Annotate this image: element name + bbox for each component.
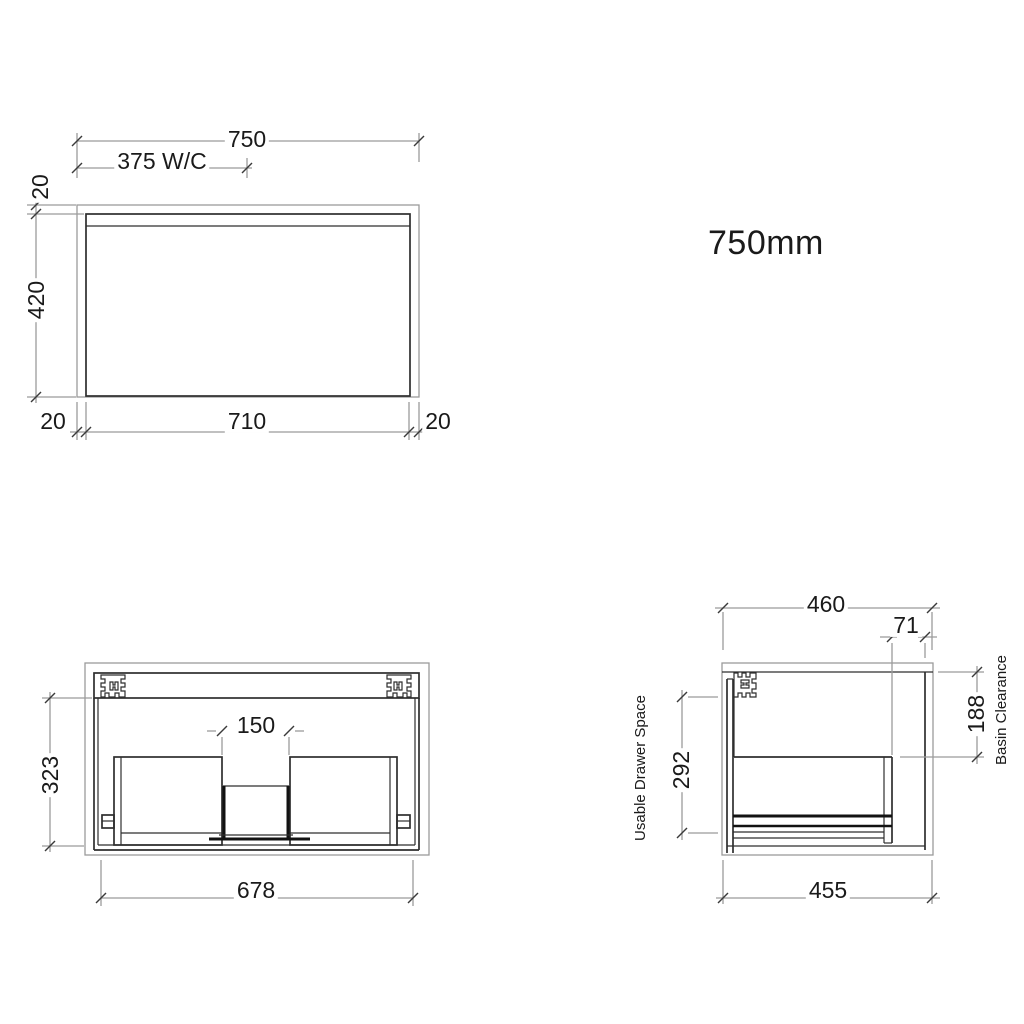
- dim-back-clearance: 71: [890, 613, 922, 637]
- front-open-linework: [42, 663, 429, 906]
- technical-drawing-canvas: 750mm 750 375 W/C 20 420 20 710 20 323 1…: [0, 0, 1024, 1024]
- joinery-icon-right: [387, 675, 411, 697]
- size-title: 750mm: [708, 224, 824, 263]
- front-elevation-linework: [27, 133, 426, 440]
- label-basin-clearance: Basin Clearance: [994, 653, 1010, 767]
- dim-internal-width: 678: [234, 878, 278, 902]
- dim-depth: 460: [804, 592, 848, 616]
- joinery-icon-left: [101, 675, 125, 697]
- label-usable-drawer-space: Usable Drawer Space: [633, 693, 649, 843]
- dim-top-thickness: 20: [28, 171, 52, 203]
- dim-bottom-width: 710: [225, 409, 269, 433]
- dim-internal-height: 323: [38, 753, 62, 797]
- dim-height: 420: [24, 278, 48, 322]
- front-elevation-ticks: [31, 136, 424, 437]
- side-section-linework: [677, 603, 984, 904]
- dim-bottom-right-reveal: 20: [422, 409, 454, 433]
- dim-overall-width: 750: [225, 127, 269, 151]
- dim-wc-offset: 375 W/C: [114, 149, 209, 173]
- dim-drawer-space: 292: [669, 748, 693, 792]
- joinery-icon-side: [734, 673, 756, 697]
- dim-basin-clearance: 188: [964, 692, 988, 736]
- dim-center-gap: 150: [234, 713, 278, 737]
- dim-bottom-left-reveal: 20: [37, 409, 69, 433]
- dim-bottom-depth: 455: [806, 878, 850, 902]
